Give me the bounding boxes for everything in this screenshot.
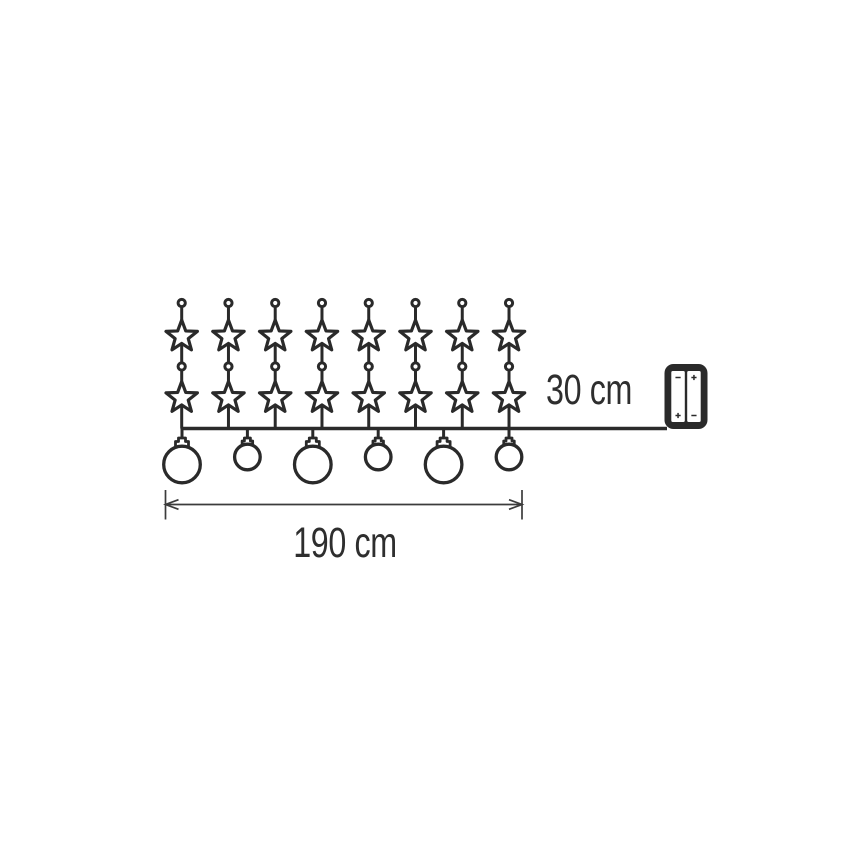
string-top-dot [318,299,325,306]
battery-pack [665,364,708,429]
star-string [400,299,431,428]
star-string [166,299,197,428]
string-top-dot [272,299,279,306]
string-mid-dot [505,363,512,370]
string-mid-dot [459,363,466,370]
bulb-large [295,429,332,483]
string-mid-dot [225,363,232,370]
string-mid-dot [272,363,279,370]
star-string [260,299,291,428]
diagram-canvas: 30 cm 190 cm [0,0,868,868]
bulb-small [365,429,391,470]
string-top-dot [225,299,232,306]
bulb-row [164,429,522,483]
bulb-large [164,429,201,483]
string-top-dot [459,299,466,306]
string-mid-dot [178,363,185,370]
string-top-dot [505,299,512,306]
battery-housing [665,364,708,429]
string-top-dot [365,299,372,306]
bulb-globe [425,446,462,483]
string-top-dot [412,299,419,306]
string-lights-dimension-diagram [0,0,868,868]
string-mid-dot [412,363,419,370]
string-mid-dot [365,363,372,370]
bulb-globe [365,444,391,470]
star-string [353,299,384,428]
dimension-line [166,490,523,520]
lead-length-label: 30 cm [529,368,649,412]
star-string [213,299,244,428]
string-mid-dot [318,363,325,370]
bulb-small [496,429,522,470]
total-length-label: 190 cm [270,521,420,565]
bulb-large [425,429,462,483]
bulb-globe [496,444,522,470]
bulb-globe [295,446,332,483]
bulb-small [235,429,261,470]
star-strings [166,299,525,428]
bulb-globe [235,444,261,470]
bulb-globe [164,446,201,483]
star-string [447,299,478,428]
star-string [493,299,524,428]
star-string [306,299,337,428]
string-top-dot [178,299,185,306]
